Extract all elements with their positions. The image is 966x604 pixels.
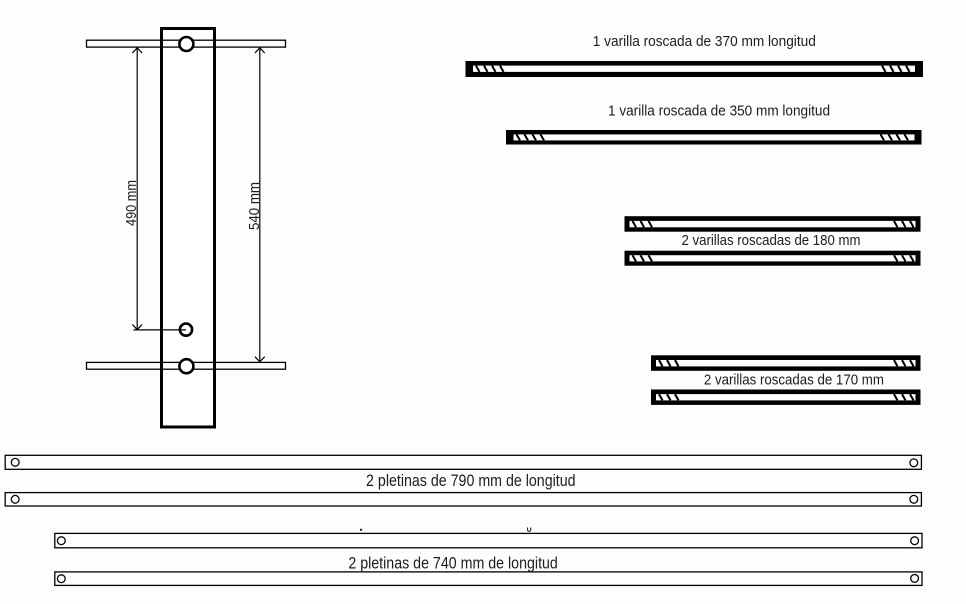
svg-text:540 mm: 540 mm: [247, 182, 263, 230]
svg-text:2 pletinas de 740 mm de longi: 2 pletinas de 740 mm de longitud: [348, 553, 558, 572]
svg-text:2 pletinas de 790 mm de long: 2 pletinas de 790 mm de longitud: [366, 471, 576, 490]
svg-text:490 mm: 490 mm: [124, 180, 140, 226]
svg-text:1 varilla roscada de 370 mm lo: 1 varilla roscada de 370 mm longitud: [593, 34, 816, 50]
svg-text:1 varilla roscada de 350 mm lo: 1 varilla roscada de 350 mm longitud: [608, 104, 830, 120]
svg-text:2 varillas roscadas de 180 mm: 2 varillas roscadas de 180 mm: [682, 233, 861, 249]
svg-text:2 varillas roscadas de 170 mm: 2 varillas roscadas de 170 mm: [704, 373, 884, 389]
